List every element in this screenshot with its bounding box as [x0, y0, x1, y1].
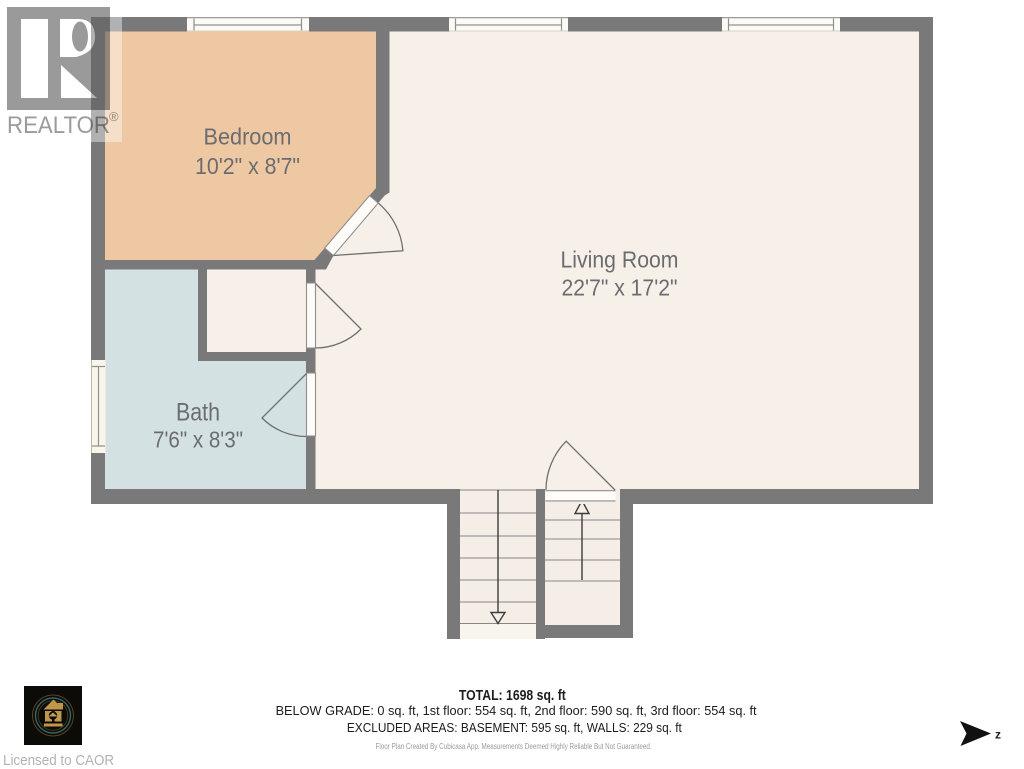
- svg-text:22'7" x 17'2": 22'7" x 17'2": [562, 275, 678, 301]
- svg-text:Living Room: Living Room: [561, 247, 679, 273]
- svg-text:REALTOR: REALTOR: [7, 112, 110, 139]
- svg-text:7'6" x 8'3": 7'6" x 8'3": [153, 427, 243, 453]
- svg-text:z: z: [995, 728, 1001, 742]
- svg-text:10'2" x 8'7": 10'2" x 8'7": [195, 153, 300, 179]
- svg-text:Bedroom: Bedroom: [204, 123, 292, 149]
- svg-text:®: ®: [109, 109, 119, 124]
- svg-text:Bath: Bath: [176, 399, 220, 427]
